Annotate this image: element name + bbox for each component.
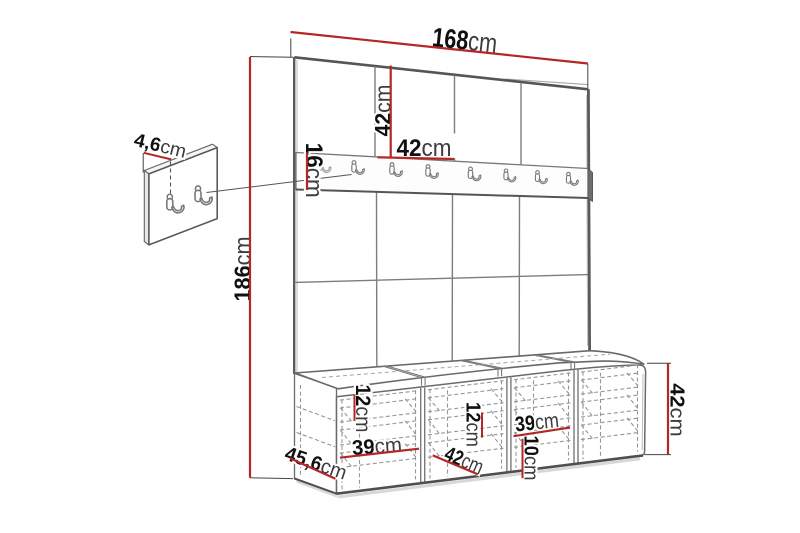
svg-text:186cm: 186cm [229, 237, 255, 302]
svg-text:12cm: 12cm [462, 402, 484, 447]
svg-text:16cm: 16cm [300, 143, 327, 198]
